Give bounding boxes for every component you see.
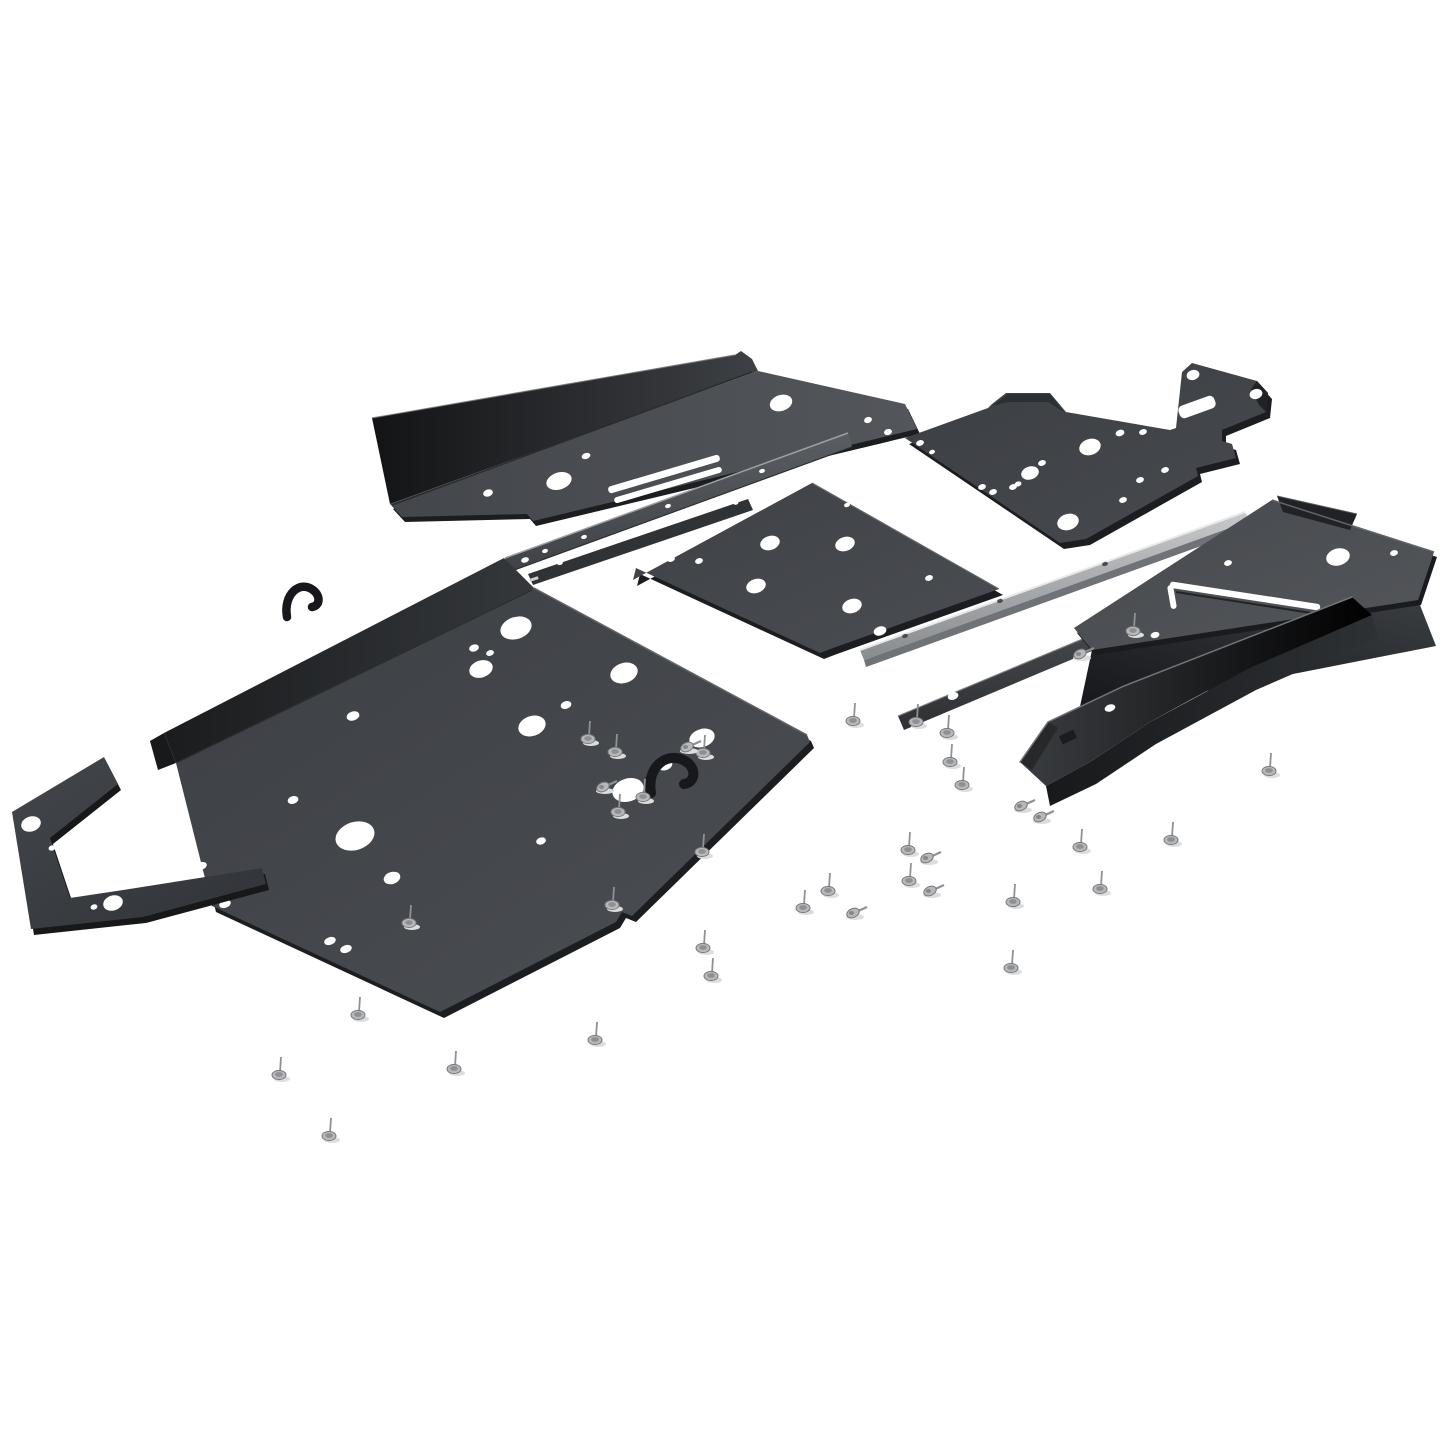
screw-pin [1012,950,1013,965]
screw-drive [1036,815,1041,819]
screw-drive [584,736,592,741]
screw-pin [909,832,910,847]
screw-pin [963,767,964,782]
screw-standing [901,832,919,857]
hole [893,517,908,530]
screw-pin [330,1118,331,1133]
screw-drive [1007,965,1015,970]
screw-drive [405,920,413,925]
screw-pin [1101,871,1102,886]
screw-lying [919,851,941,865]
screw-drive [1009,899,1017,904]
screw-pin [1081,829,1082,844]
screw-standing [1006,884,1024,909]
screw-drive [614,809,622,814]
hole [1030,641,1043,652]
screw-pin [712,958,713,973]
screw-pin [596,1022,597,1037]
screw-drive [849,718,857,723]
screw-drive [958,782,966,787]
screw-drive [1167,837,1175,842]
screw-pin [854,703,855,718]
screw-pin [829,873,830,888]
screw-pin [280,1057,281,1072]
screw-drive [849,911,854,915]
screw-pin [703,834,704,849]
screw-pin [704,930,705,945]
screw-drive [905,878,913,883]
screw-pin [1270,753,1271,768]
screw-pin [804,890,805,905]
screw-drive [926,889,931,893]
screw-drive [923,856,928,860]
front-skid-plate [150,558,814,1018]
screw-standing [902,863,920,888]
screw-drive [698,849,706,854]
screw-pin [589,721,590,736]
hole [656,552,665,560]
screw-pin [359,997,360,1012]
screw-drive [611,749,619,754]
screw-drive [799,905,807,910]
screw-drive [943,730,951,735]
screw-pin [455,1051,456,1066]
screw-standing [322,1118,340,1143]
screw-standing [1164,822,1182,847]
screw-pin [613,887,614,902]
screw-drive [1265,768,1273,773]
screw-drive [683,745,688,749]
screw-pin [948,715,949,730]
screw-drive [1129,628,1137,633]
screw-pin [910,863,911,878]
product-image-canvas [0,0,1445,1445]
screw-drive [699,945,707,950]
screw-drive [608,902,616,907]
screw-pin [1134,613,1135,628]
screw-standing [1093,871,1111,896]
screw-standing [1004,950,1022,975]
screw-pin [1172,822,1173,837]
screw-pin [410,905,411,920]
screw-lying [845,906,867,920]
screw-drive [1017,804,1022,808]
screw-drive [1096,886,1104,891]
screw-pin [951,744,952,759]
screw-standing [821,873,839,898]
screw-pin [704,735,705,750]
screw-standing [351,997,369,1022]
screw-drive [354,1012,362,1017]
screw-drive [639,794,647,799]
screw-drive [824,888,832,893]
screw-drive [946,759,954,764]
screw-drive [450,1066,458,1071]
screw-drive [591,1037,599,1042]
screw-standing [943,744,961,769]
screw-drive [1076,844,1084,849]
hole [178,853,192,864]
screw-drive [325,1133,333,1138]
screw-lying [1013,799,1035,813]
screw-standing [1073,829,1091,854]
product-render [0,0,1445,1445]
screw-drive [904,847,912,852]
screw-pin [1014,884,1015,899]
screw-standing [704,958,722,983]
screw-standing [940,715,958,740]
screw-drive [1076,652,1081,656]
screw-standing [796,890,814,915]
retainer-hook-left [286,587,318,617]
screw-lying [1032,810,1054,824]
screw-pin [644,779,645,794]
exploded-kit [12,351,1437,1143]
screw-pin [917,704,918,719]
screw-drive [699,750,707,755]
screw-standing [846,703,864,728]
screw-drive [275,1072,283,1077]
screw-standing [447,1051,465,1076]
screw-standing [1262,753,1280,778]
screw-standing [588,1022,606,1047]
screw-pin [616,734,617,749]
screw-drive [707,973,715,978]
screw-pin [619,794,620,809]
hole [952,553,959,559]
screw-standing [955,767,973,792]
screw-drive [599,785,604,789]
screw-lying [922,884,944,898]
screw-drive [912,719,920,724]
screw-standing [272,1057,290,1082]
screw-standing [696,930,714,955]
